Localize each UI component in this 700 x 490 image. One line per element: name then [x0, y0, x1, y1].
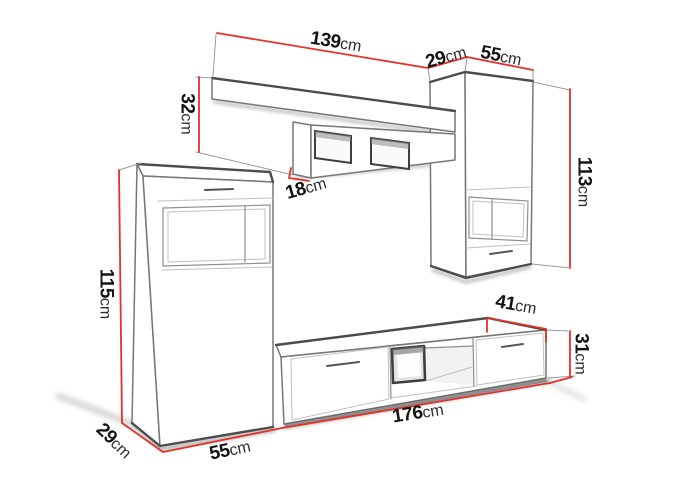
dim-label-right-cabinet-depth: 29cm [423, 41, 469, 73]
dim-label-left-cabinet-depth: 29cm [92, 419, 136, 463]
dim-label-tv-stand-depth: 41cm [494, 291, 538, 319]
dim-line-left-cabinet-height [119, 170, 122, 423]
dim-label-left-cabinet-height: 115cm [95, 269, 116, 319]
dim-label-shelf-width: 139cm [309, 28, 363, 57]
right-wall-cabinet [430, 72, 533, 278]
right-cabinet-side-face [430, 72, 466, 277]
shelf-end-panel [293, 122, 311, 178]
dim-label-tv-stand-height: 31cm [570, 333, 591, 374]
wall-shelf [212, 78, 455, 178]
dim-label-right-cabinet-width: 55cm [479, 42, 524, 71]
dim-label-shelf-height: 32cm [176, 93, 197, 134]
left-cabinet-handle [205, 189, 233, 190]
dim-label-right-cabinet-height: 113cm [573, 157, 594, 207]
left-cabinet [132, 164, 273, 446]
furniture-dimension-diagram: 139cm 29cm 55cm 32cm 18cm 113cm 115cm 29… [0, 0, 700, 490]
diagram-canvas: 139cm 29cm 55cm 32cm 18cm 113cm 115cm 29… [0, 0, 700, 490]
